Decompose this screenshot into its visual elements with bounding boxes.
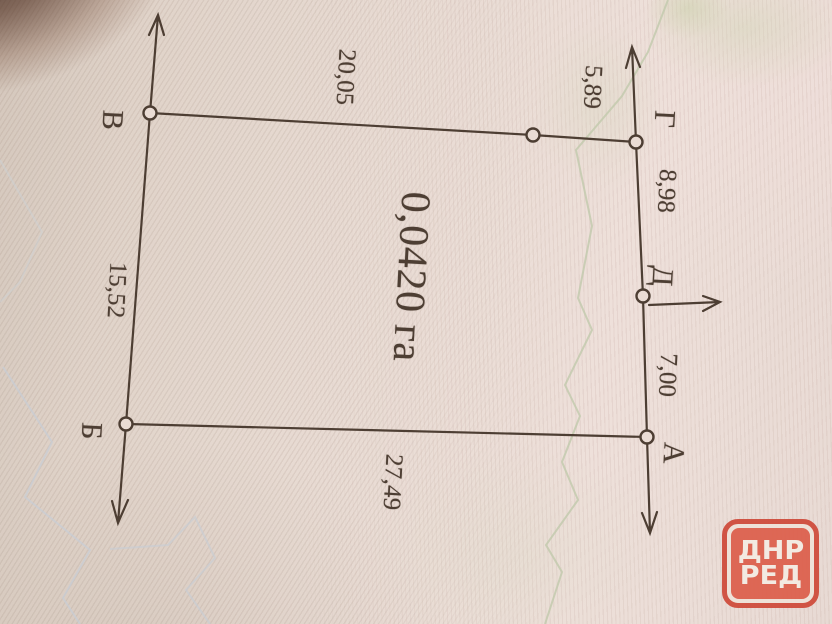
arrow-beyond-g xyxy=(626,47,640,142)
arrow-from-d xyxy=(649,296,720,311)
point-v xyxy=(144,107,157,120)
contour-line-blue-3 xyxy=(0,160,42,302)
vertex-label-d: Д xyxy=(644,265,679,287)
watermark-text-bottom: РЕД xyxy=(739,564,801,589)
watermark-border: ДНР РЕД xyxy=(722,519,819,608)
measurement-d-a: 7,00 xyxy=(652,352,682,397)
point-b xyxy=(120,418,133,431)
measurement-b-v: 15,52 xyxy=(101,261,132,319)
arrow-beyond-v xyxy=(149,15,164,113)
arrow-beyond-a xyxy=(642,437,657,533)
contour-line-blue-2 xyxy=(110,517,215,624)
measurement-a-b: 27,49 xyxy=(377,453,408,511)
measurement-v-g: 20,05 xyxy=(330,48,361,106)
watermark-stamp: ДНР РЕД xyxy=(722,519,819,608)
point-a xyxy=(641,431,654,444)
vertex-label-a: А xyxy=(655,441,690,464)
vertex-label-g: Г xyxy=(647,109,682,128)
plot-plan-photo: 0,0420 га В Г Д А Б 20,05 5,89 8,98 7,00… xyxy=(0,0,832,624)
measurement-mid-g: 5,89 xyxy=(577,64,607,109)
contour-line-blue-1 xyxy=(3,367,90,624)
point-g xyxy=(630,136,643,149)
point-d xyxy=(637,290,650,303)
point-mid xyxy=(527,129,540,142)
area-label: 0,0420 га xyxy=(383,190,440,363)
vertex-label-v: В xyxy=(94,109,129,131)
watermark-body: ДНР РЕД xyxy=(731,528,810,599)
vertex-label-b: Б xyxy=(74,422,109,441)
arrow-beyond-b xyxy=(112,424,128,523)
measurement-g-d: 8,98 xyxy=(651,168,681,213)
